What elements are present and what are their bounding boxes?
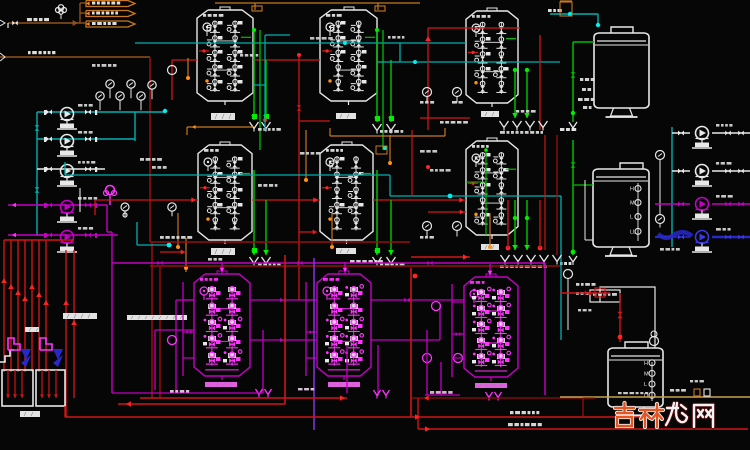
svg-text:H: H [644,361,648,367]
svg-text:M: M [644,371,649,377]
svg-text:H: H [630,187,634,193]
svg-text:LL: LL [630,229,636,235]
svg-text:L: L [644,382,647,388]
svg-text:M: M [630,201,635,207]
svg-text:L: L [630,215,633,221]
